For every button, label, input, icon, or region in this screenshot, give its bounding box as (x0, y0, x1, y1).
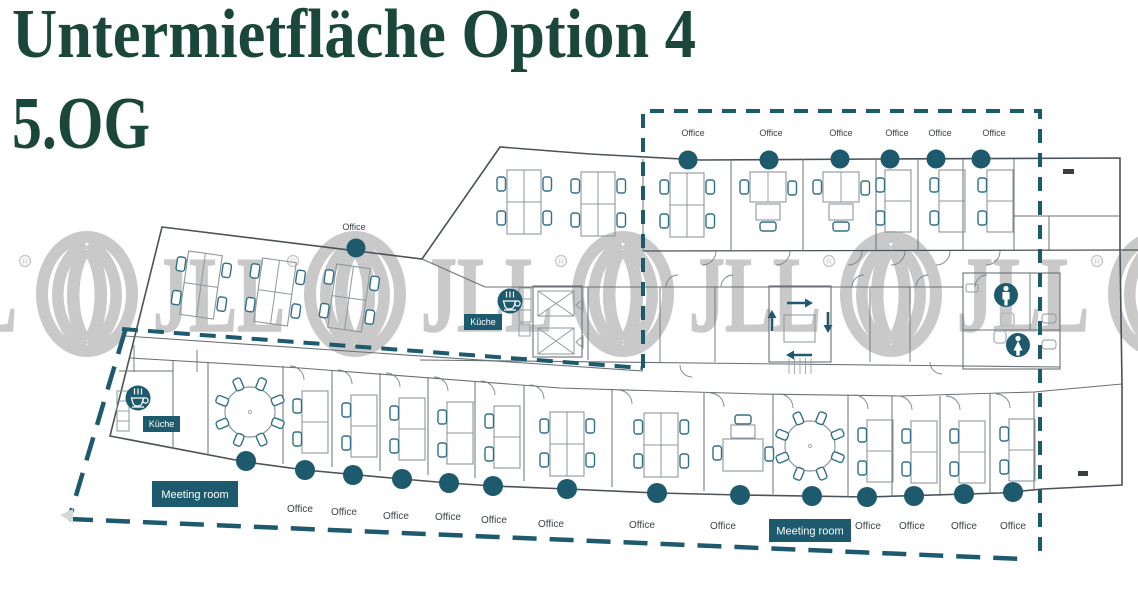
svg-text:Küche: Küche (470, 317, 496, 327)
svg-text:Office: Office (1000, 521, 1026, 532)
svg-text:Office: Office (383, 511, 409, 522)
svg-text:Office: Office (287, 504, 313, 515)
svg-text:Office: Office (342, 222, 365, 232)
svg-text:Office: Office (629, 520, 655, 531)
svg-text:Office: Office (928, 128, 951, 138)
svg-text:R: R (826, 258, 832, 267)
svg-text:Untermietfläche Option 4: Untermietfläche Option 4 (12, 0, 696, 73)
svg-text:Office: Office (982, 128, 1005, 138)
svg-text:Office: Office (829, 128, 852, 138)
svg-text:Office: Office (710, 521, 736, 532)
svg-text:Office: Office (681, 128, 704, 138)
svg-text:Office: Office (855, 521, 881, 532)
svg-text:Küche: Küche (149, 419, 175, 429)
svg-text:5.OG: 5.OG (12, 83, 150, 165)
svg-text:Office: Office (885, 128, 908, 138)
svg-text:Meeting room: Meeting room (776, 525, 843, 537)
svg-text:Office: Office (538, 519, 564, 530)
svg-text:Office: Office (951, 521, 977, 532)
svg-text:R: R (22, 258, 28, 267)
svg-text:Office: Office (759, 128, 782, 138)
svg-text:JLL: JLL (689, 236, 821, 355)
svg-text:Office: Office (481, 515, 507, 526)
svg-text:R: R (558, 258, 564, 267)
svg-text:JLL: JLL (0, 236, 17, 355)
svg-text:Office: Office (331, 507, 357, 518)
svg-text:Office: Office (899, 521, 925, 532)
svg-text:Meeting room: Meeting room (161, 489, 228, 501)
svg-text:Office: Office (435, 512, 461, 523)
svg-text:R: R (1094, 258, 1100, 267)
